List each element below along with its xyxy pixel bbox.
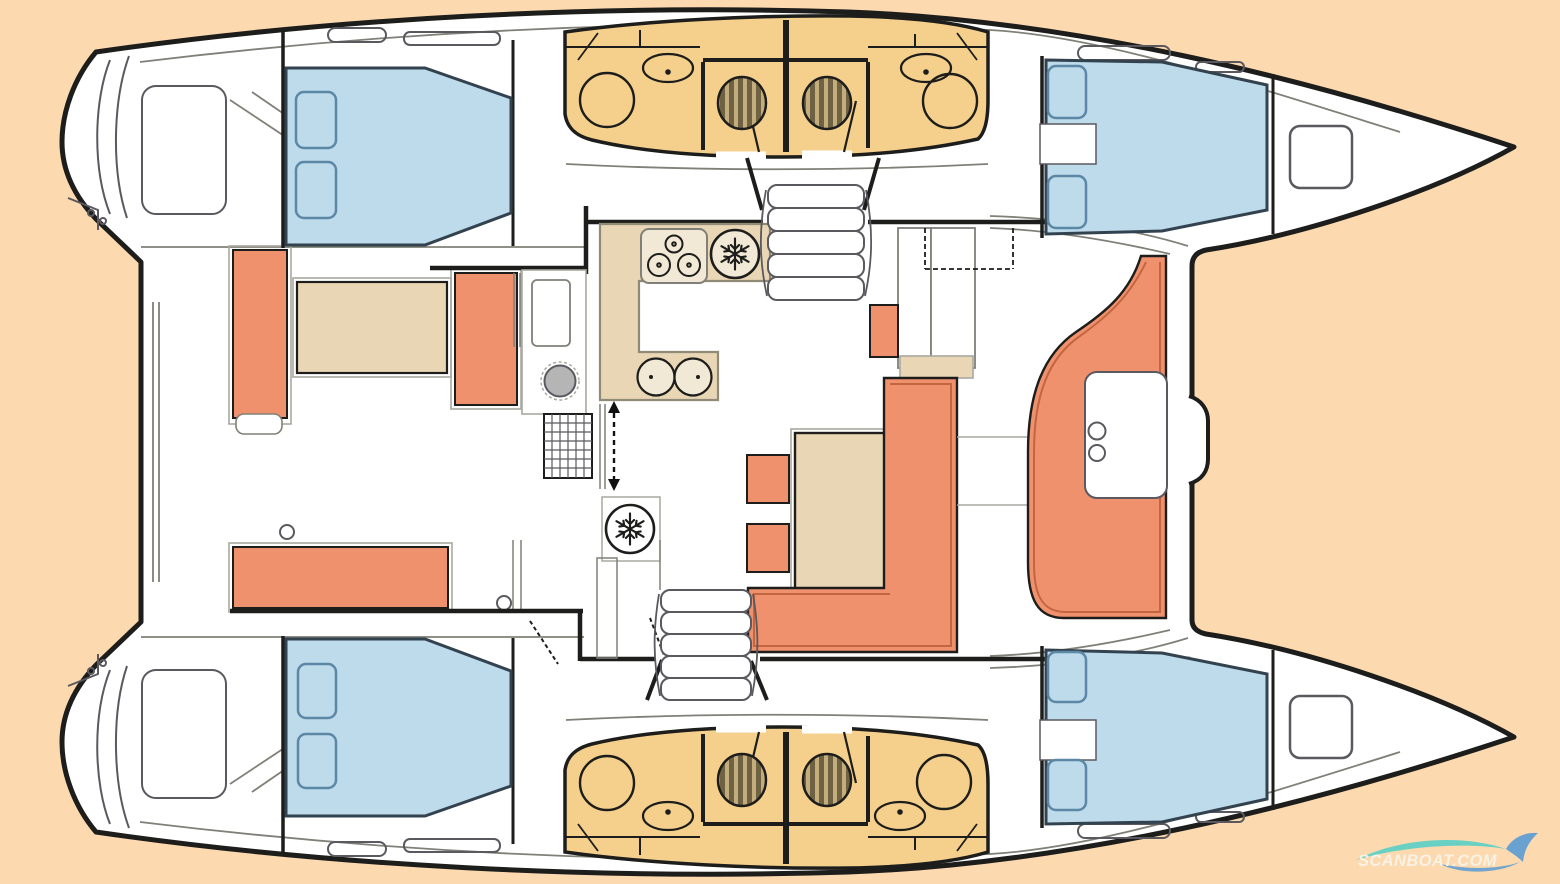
pillow <box>298 734 336 788</box>
heads-port-hull <box>565 16 988 157</box>
cockpit-table <box>297 282 447 373</box>
tread <box>661 634 751 656</box>
stairs-icon <box>768 185 864 300</box>
tread <box>661 612 751 634</box>
dinette-stool <box>747 524 789 572</box>
toilet-icon <box>803 77 851 129</box>
toilet-icon <box>803 754 851 806</box>
pillow <box>298 664 336 718</box>
tread <box>768 208 864 231</box>
heads-starboard-hull <box>565 727 988 868</box>
cabin-landing <box>1040 720 1096 760</box>
foredeck-door <box>1189 396 1208 484</box>
table-leg-socket <box>497 596 511 610</box>
toilet-icon <box>718 77 766 129</box>
sink-drain <box>649 375 653 379</box>
galley-sink-icon <box>675 359 712 396</box>
nav-cabinet <box>931 228 975 368</box>
watermark-text: SCANBOAT.COM <box>1358 852 1498 870</box>
heads-block <box>565 16 988 157</box>
stairs-starboard <box>647 590 767 700</box>
round-steel-sink-icon <box>545 366 576 397</box>
table-leg-socket <box>280 525 294 539</box>
cockpit-bench-port <box>233 250 287 418</box>
pillow <box>1048 66 1086 118</box>
pillow <box>296 162 336 218</box>
sink-tap <box>665 69 671 75</box>
stove-icon <box>641 229 707 283</box>
sink-drain <box>696 375 700 379</box>
cabin-landing <box>1040 124 1096 164</box>
toilet-icon <box>718 754 766 806</box>
cup-holder <box>1089 423 1106 440</box>
pillow <box>1048 176 1086 228</box>
pillow <box>1048 652 1086 702</box>
sink-tap <box>897 809 903 815</box>
cockpit-bench-mid <box>455 273 517 405</box>
tread <box>661 656 751 678</box>
tread <box>768 254 864 277</box>
pillow <box>1048 760 1086 810</box>
tread <box>768 231 864 254</box>
sink-tap <box>665 809 671 815</box>
cup-holder <box>1089 445 1105 461</box>
nav-cabinet <box>898 228 931 368</box>
bench-end-step <box>236 414 282 434</box>
tread <box>768 277 864 300</box>
cockpit-bench-aft <box>233 547 448 608</box>
floorplan-canvas: SCANBOAT.COM <box>0 0 1560 884</box>
dinette-table <box>795 433 885 590</box>
tread <box>661 590 751 612</box>
nav-seat <box>870 305 898 357</box>
pillow <box>296 92 336 148</box>
catamaran-floorplan-image: SCANBOAT.COM <box>0 0 1560 884</box>
tread <box>768 185 864 208</box>
sink-tap <box>923 69 929 75</box>
nav-shelf <box>900 356 973 378</box>
dinette-stool <box>747 455 789 503</box>
stairs-icon <box>661 590 751 700</box>
galley-sink-icon <box>638 359 675 396</box>
tread <box>661 678 751 700</box>
